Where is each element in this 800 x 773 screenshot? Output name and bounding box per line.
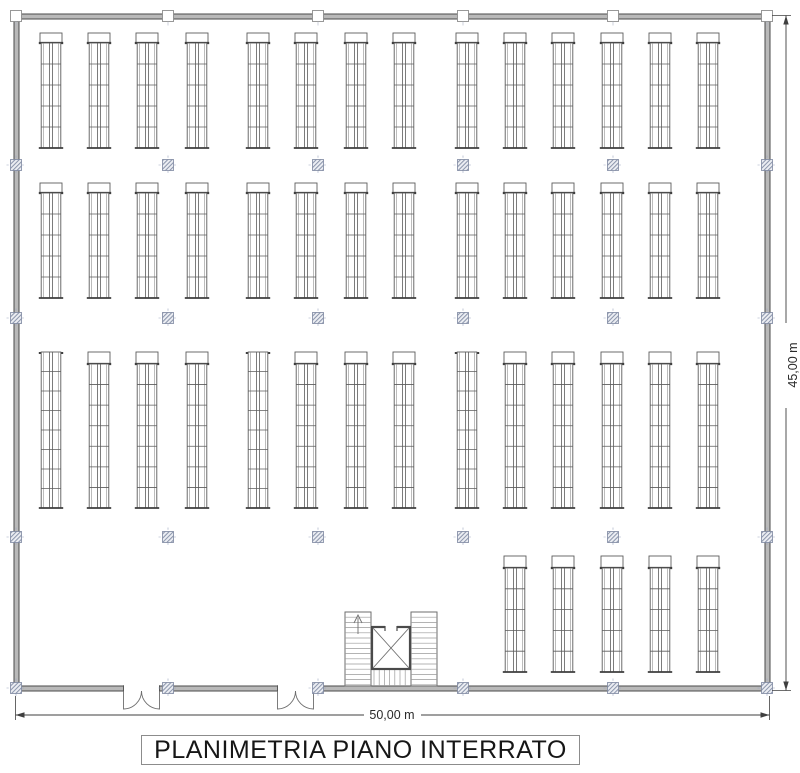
shelving-rack	[39, 33, 63, 148]
rack-cap	[504, 352, 526, 364]
rack-body	[89, 364, 109, 508]
rack-body	[89, 43, 109, 148]
door-leaf	[124, 691, 142, 709]
rack-body	[137, 43, 157, 148]
rack-cap	[697, 556, 719, 568]
rack-cap	[136, 33, 158, 43]
column-marker-hatched	[458, 683, 469, 694]
rack-cap	[393, 352, 415, 364]
column-marker-hatched	[163, 532, 174, 543]
rack-cap	[649, 556, 671, 568]
stair-flight	[411, 612, 437, 686]
column-marker-open	[313, 11, 324, 22]
shelving-rack	[551, 33, 575, 148]
column-marker-hatched	[163, 683, 174, 694]
title-block: PLANIMETRIA PIANO INTERRATO	[141, 735, 580, 765]
rack-cap	[504, 183, 526, 193]
rack-body	[187, 43, 207, 148]
shelving-rack	[551, 556, 575, 672]
shelving-rack	[87, 352, 111, 508]
shelving-rack	[648, 33, 672, 148]
rack-body	[248, 193, 268, 298]
shelving-rack	[39, 183, 63, 298]
rack-body	[553, 193, 573, 298]
rack-cap	[552, 183, 574, 193]
rack-cap	[552, 33, 574, 43]
rack-body	[650, 193, 670, 298]
rack-cap	[88, 33, 110, 43]
rack-body	[296, 193, 316, 298]
shelving-rack	[344, 352, 368, 508]
shelving-rack	[135, 33, 159, 148]
rack-cap	[601, 33, 623, 43]
rack-body	[346, 364, 366, 508]
shelving-rack	[503, 33, 527, 148]
shelving-rack	[246, 33, 270, 148]
shelving-rack	[294, 33, 318, 148]
door-opening	[278, 685, 314, 692]
shelving-rack	[600, 33, 624, 148]
rack-cap	[345, 352, 367, 364]
column-marker-hatched	[608, 160, 619, 171]
rack-cap	[295, 183, 317, 193]
shelving-rack	[455, 33, 479, 148]
rack-body	[553, 568, 573, 672]
rack-cap	[504, 33, 526, 43]
rack-cap	[601, 183, 623, 193]
rack-body	[137, 193, 157, 298]
door-leaf	[296, 691, 314, 709]
shelving-rack	[648, 183, 672, 298]
column-marker-open	[608, 11, 619, 22]
column-marker-open	[163, 11, 174, 22]
shelving-rack	[696, 183, 720, 298]
shelving-rack	[392, 183, 416, 298]
shelving-rack	[600, 352, 624, 508]
rack-body	[89, 193, 109, 298]
shelving-rack	[696, 33, 720, 148]
column-marker-hatched	[608, 683, 619, 694]
shelving-rack	[344, 183, 368, 298]
shelving-rack	[39, 352, 63, 508]
rack-body	[650, 43, 670, 148]
rack-cap	[649, 352, 671, 364]
shelving-rack	[648, 556, 672, 672]
shelving-rack	[135, 352, 159, 508]
rack-body	[505, 43, 525, 148]
rack-body	[505, 568, 525, 672]
rack-body	[187, 193, 207, 298]
rack-body	[602, 193, 622, 298]
column-marker-hatched	[608, 313, 619, 324]
column-marker-hatched	[762, 683, 773, 694]
rack-cap	[136, 183, 158, 193]
shelving-rack	[551, 352, 575, 508]
shelving-rack	[392, 33, 416, 148]
rack-body	[248, 43, 268, 148]
column-marker-hatched	[313, 683, 324, 694]
shelving-rack	[455, 352, 479, 508]
column-marker-hatched	[11, 683, 22, 694]
floorplan-canvas: 50,00 m45,00 m PLANIMETRIA PIANO INTERRA…	[0, 0, 800, 773]
rack-body	[553, 43, 573, 148]
rack-body	[296, 364, 316, 508]
rack-body	[457, 43, 477, 148]
shelving-rack	[455, 183, 479, 298]
rack-cap	[88, 183, 110, 193]
column-marker-hatched	[313, 313, 324, 324]
rack-body	[394, 193, 414, 298]
rack-body	[41, 43, 61, 148]
rack-body	[505, 364, 525, 508]
shelving-rack	[135, 183, 159, 298]
rack-body	[698, 364, 718, 508]
rack-body	[346, 43, 366, 148]
column-marker-hatched	[313, 160, 324, 171]
column-marker-open	[762, 11, 773, 22]
dim-arrow-up	[783, 16, 788, 25]
column-marker-hatched	[458, 160, 469, 171]
column-marker-hatched	[458, 313, 469, 324]
column-marker-hatched	[608, 532, 619, 543]
column-marker-hatched	[11, 160, 22, 171]
column-marker-hatched	[313, 532, 324, 543]
shelving-rack	[87, 183, 111, 298]
shelving-rack	[294, 183, 318, 298]
rack-cap	[697, 352, 719, 364]
rack-cap	[697, 33, 719, 43]
column-marker-hatched	[458, 532, 469, 543]
dim-width-label: 50,00 m	[369, 708, 414, 722]
rack-body	[650, 364, 670, 508]
rack-body	[602, 568, 622, 672]
dimension-bottom: 50,00 m	[16, 696, 770, 722]
rack-body	[137, 364, 157, 508]
rack-cap	[186, 33, 208, 43]
dim-arrow-right	[761, 712, 770, 717]
dim-height-label: 45,00 m	[786, 342, 800, 387]
column-marker-hatched	[762, 160, 773, 171]
shelving-rack	[503, 352, 527, 508]
rack-cap	[88, 352, 110, 364]
plan-title: PLANIMETRIA PIANO INTERRATO	[154, 736, 567, 765]
rack-cap	[40, 33, 62, 43]
shelving-rack	[294, 352, 318, 508]
column-marker-hatched	[762, 313, 773, 324]
dim-arrow-left	[16, 712, 25, 717]
rack-body	[698, 193, 718, 298]
rack-cap	[247, 183, 269, 193]
rack-body	[698, 43, 718, 148]
rack-cap	[345, 183, 367, 193]
shelving-rack	[503, 183, 527, 298]
rack-cap	[393, 183, 415, 193]
double-door	[124, 685, 160, 709]
column-marker-hatched	[11, 532, 22, 543]
column-marker-hatched	[163, 160, 174, 171]
door-leaf	[278, 691, 296, 709]
door-leaf	[142, 691, 160, 709]
rack-body	[553, 364, 573, 508]
rack-body	[650, 568, 670, 672]
rack-cap	[649, 183, 671, 193]
rack-cap	[40, 183, 62, 193]
rack-cap	[601, 352, 623, 364]
rack-cap	[295, 33, 317, 43]
dim-arrow-down	[783, 682, 788, 691]
rack-cap	[649, 33, 671, 43]
column-marker-hatched	[163, 313, 174, 324]
shelving-rack	[696, 352, 720, 508]
shelving-rack	[185, 183, 209, 298]
shelving-rack	[600, 183, 624, 298]
rack-body	[346, 193, 366, 298]
shelving-rack	[87, 33, 111, 148]
dimension-right: 45,00 m	[772, 16, 800, 691]
shelving-rack	[246, 183, 270, 298]
rack-cap	[601, 556, 623, 568]
rack-cap	[295, 352, 317, 364]
shelving-rack	[185, 352, 209, 508]
rack-cap	[552, 352, 574, 364]
rack-cap	[186, 352, 208, 364]
shelving-rack	[392, 352, 416, 508]
column-marker-open	[11, 11, 22, 22]
rack-body	[457, 193, 477, 298]
elevator-door-gap	[385, 625, 397, 628]
shelving-rack	[503, 556, 527, 672]
rack-cap	[393, 33, 415, 43]
column-marker-hatched	[762, 532, 773, 543]
rack-cap	[552, 556, 574, 568]
rack-body	[187, 364, 207, 508]
rack-body	[296, 43, 316, 148]
column-marker-hatched	[11, 313, 22, 324]
rack-cap	[456, 33, 478, 43]
rack-body	[41, 193, 61, 298]
shelving-rack	[185, 33, 209, 148]
door-opening	[124, 685, 160, 692]
shelving-rack	[648, 352, 672, 508]
shelving-rack	[696, 556, 720, 672]
shelving-rack	[344, 33, 368, 148]
shelving-rack	[551, 183, 575, 298]
double-door	[278, 685, 314, 709]
rack-cap	[247, 33, 269, 43]
rack-body	[505, 193, 525, 298]
rack-cap	[456, 183, 478, 193]
plan-drawing: 50,00 m45,00 m	[0, 0, 800, 773]
rack-cap	[345, 33, 367, 43]
rack-body	[698, 568, 718, 672]
rack-body	[602, 43, 622, 148]
rack-cap	[697, 183, 719, 193]
rack-cap	[186, 183, 208, 193]
shelving-rack	[246, 352, 270, 508]
rack-body	[394, 364, 414, 508]
rack-cap	[504, 556, 526, 568]
rack-body	[602, 364, 622, 508]
shelving-rack	[600, 556, 624, 672]
rack-cap	[136, 352, 158, 364]
column-marker-open	[458, 11, 469, 22]
rack-body	[394, 43, 414, 148]
